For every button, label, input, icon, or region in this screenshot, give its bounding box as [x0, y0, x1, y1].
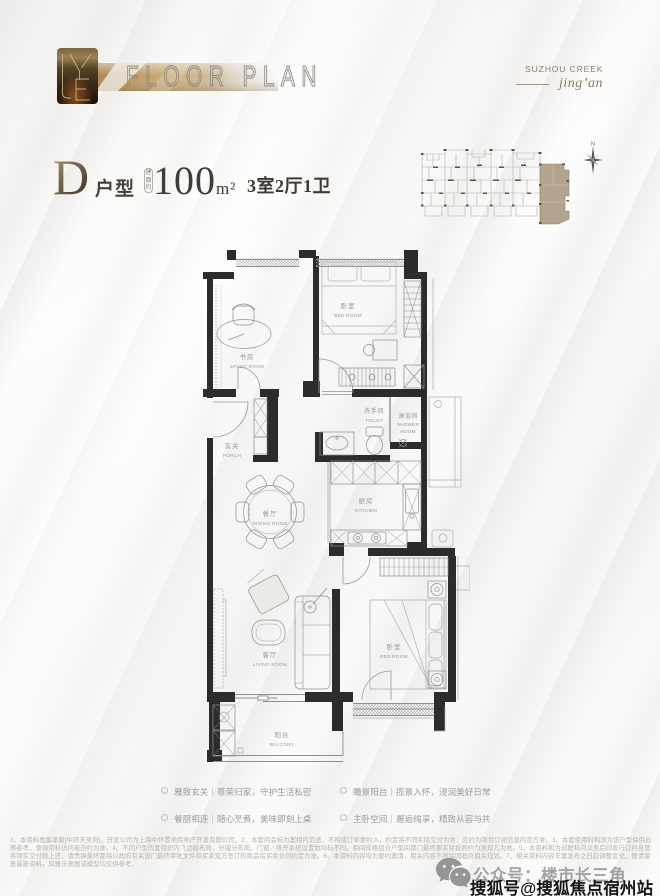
svg-text:阳台: 阳台: [275, 730, 290, 739]
svg-text:玄关: 玄关: [225, 441, 240, 450]
svg-text:PORCH: PORCH: [223, 453, 241, 458]
svg-text:书房: 书房: [240, 352, 255, 361]
svg-text:BALCONY: BALCONY: [270, 742, 295, 747]
svg-text:卧室: 卧室: [387, 642, 402, 651]
svg-text:STUDY ROOM: STUDY ROOM: [230, 364, 264, 369]
svg-text:厨房: 厨房: [359, 496, 374, 505]
svg-text:TOILET: TOILET: [365, 418, 383, 423]
svg-text:BED ROOM: BED ROOM: [380, 654, 408, 659]
svg-text:ROOM: ROOM: [400, 429, 415, 434]
svg-text:餐厅: 餐厅: [263, 509, 278, 518]
svg-text:FLOOR PLAN: FLOOR PLAN: [126, 61, 323, 93]
svg-text:客厅: 客厅: [263, 650, 278, 659]
svg-text:淋浴间: 淋浴间: [398, 412, 417, 420]
svg-text:LIVING ROOM: LIVING ROOM: [253, 662, 287, 667]
svg-text:卧室: 卧室: [341, 301, 356, 310]
svg-text:KITCHEN: KITCHEN: [355, 508, 377, 513]
svg-text:DINING ROOM: DINING ROOM: [252, 521, 287, 526]
svg-text:洗手间: 洗手间: [364, 407, 384, 415]
svg-text:SHOWER: SHOWER: [397, 422, 419, 427]
svg-text:BED ROOM: BED ROOM: [334, 313, 362, 318]
svg-text:D: D: [53, 149, 89, 205]
